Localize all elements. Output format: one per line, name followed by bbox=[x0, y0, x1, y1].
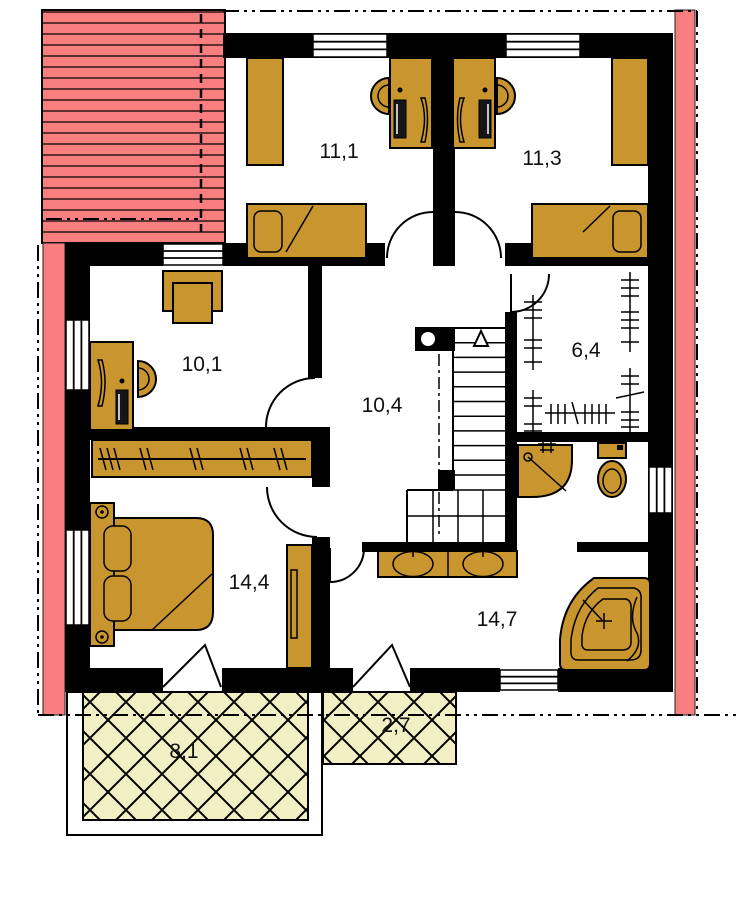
wall-room101-right-upper bbox=[308, 266, 322, 378]
window-room101-north bbox=[163, 244, 223, 265]
room-label-6-4: 6,4 bbox=[571, 339, 601, 362]
wall-bottom-seg3 bbox=[410, 668, 500, 692]
closet-rail bbox=[92, 440, 312, 477]
window-left-1 bbox=[66, 320, 89, 390]
toilet bbox=[598, 443, 626, 497]
wall-right bbox=[648, 33, 673, 692]
roof-overhang-strip-left bbox=[43, 243, 65, 715]
mouse-icon bbox=[398, 88, 403, 93]
roof-overhang-strip-right bbox=[675, 10, 695, 715]
wall-bottom-seg1 bbox=[65, 668, 163, 692]
wall-bedroom-divider bbox=[433, 33, 455, 243]
wall-wardrobe-room-bottom bbox=[517, 432, 648, 442]
single-bed bbox=[247, 204, 366, 258]
room-label-11-1: 11,1 bbox=[319, 140, 358, 163]
wardrobe bbox=[247, 58, 283, 165]
monitor-icon bbox=[116, 390, 128, 424]
room-label-2-7: 2,7 bbox=[381, 714, 410, 737]
room-label-11-3: 11,3 bbox=[522, 147, 561, 170]
chimney-flue bbox=[421, 332, 435, 346]
floor-plan-drawing: 11,1 11,3 10,1 10,4 6,4 14,4 14,7 8,1 2,… bbox=[0, 0, 756, 900]
terrace-large bbox=[67, 692, 322, 835]
room-label-14-7: 14,7 bbox=[477, 608, 518, 631]
wall-room144-right-lower bbox=[312, 537, 330, 668]
single-bed bbox=[532, 204, 648, 258]
room-label-8-1: 8,1 bbox=[169, 740, 198, 763]
window-right-bathroom bbox=[649, 467, 672, 513]
wall-shower-bottom bbox=[577, 542, 648, 552]
roof-overhang-block bbox=[42, 10, 225, 243]
double-bed bbox=[90, 503, 213, 646]
wardrobe bbox=[612, 58, 648, 165]
room-label-10-1: 10,1 bbox=[182, 353, 223, 376]
wall-mid-seg1 bbox=[90, 243, 163, 266]
monitor-icon bbox=[479, 100, 491, 138]
window-top-2 bbox=[506, 34, 580, 57]
window-top-1 bbox=[313, 34, 387, 57]
monitor-icon bbox=[394, 100, 406, 138]
window-bottom-bathroom bbox=[500, 670, 558, 690]
mouse-icon bbox=[120, 379, 125, 384]
wall-stair-shaft bbox=[505, 312, 517, 547]
mouse-icon bbox=[483, 88, 488, 93]
tall-wardrobe bbox=[287, 545, 312, 668]
window-left-2 bbox=[66, 530, 89, 625]
wall-bottom-seg2 bbox=[222, 668, 353, 692]
room-label-10-4: 10,4 bbox=[362, 394, 403, 417]
corner-shower bbox=[518, 440, 572, 497]
room-label-14-4: 14,4 bbox=[229, 571, 270, 594]
wall-bottom-seg4 bbox=[558, 668, 673, 692]
wall-room144-right-upper bbox=[312, 437, 330, 487]
wall-mid-stub bbox=[433, 243, 455, 266]
